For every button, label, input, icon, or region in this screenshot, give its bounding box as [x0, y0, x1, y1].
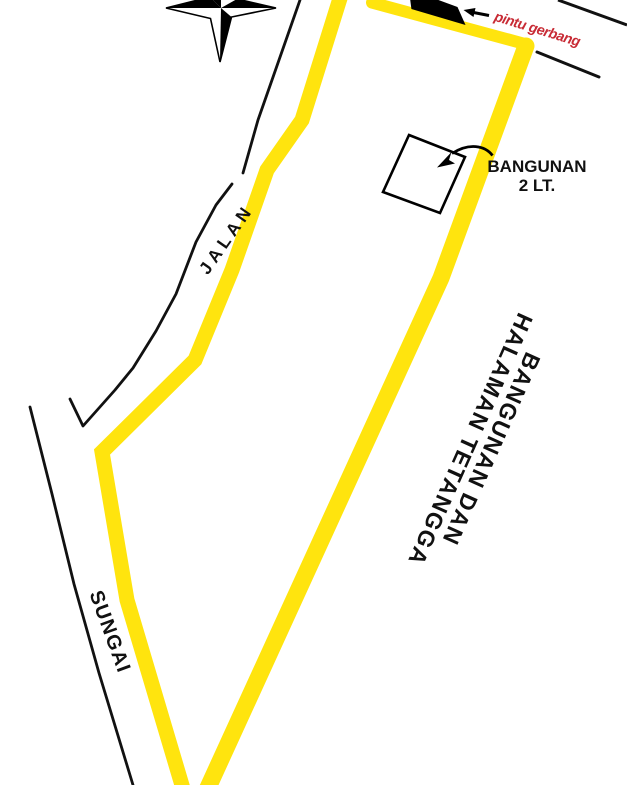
svg-text:2 LT.: 2 LT. — [519, 176, 556, 195]
svg-text:HALAMAN TETANGGA: HALAMAN TETANGGA — [403, 309, 538, 570]
svg-text:BANGUNAN: BANGUNAN — [487, 157, 586, 176]
